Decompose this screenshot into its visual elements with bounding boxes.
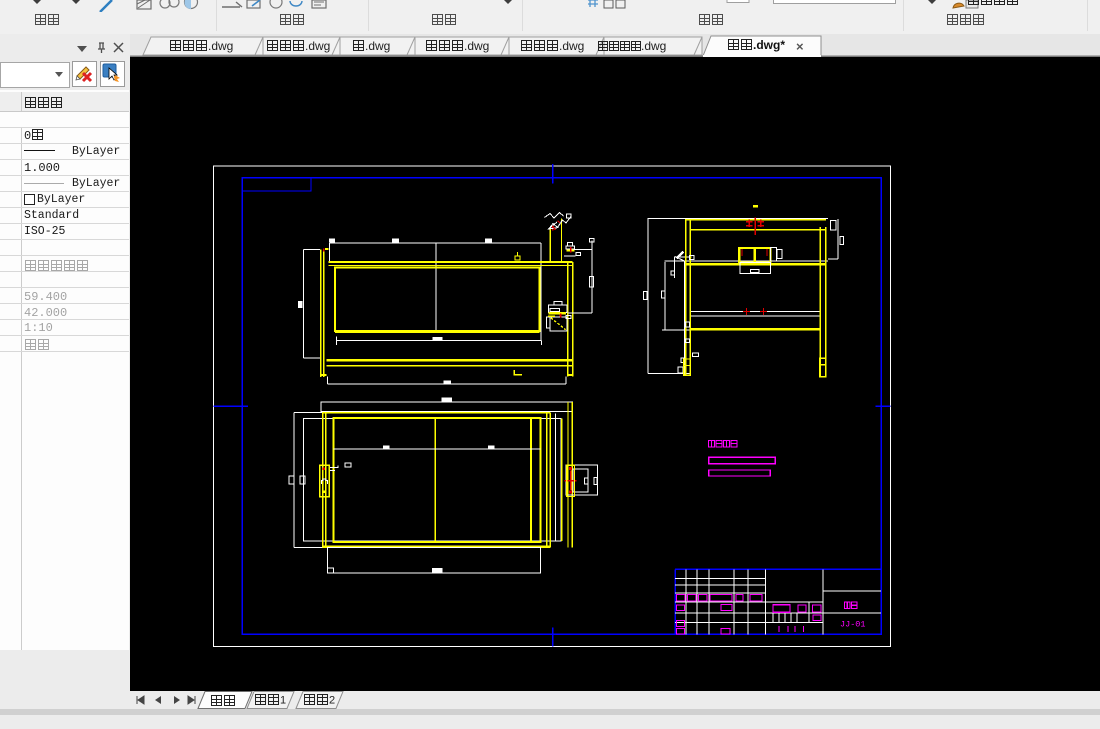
svg-text:JJ-01: JJ-01 — [840, 620, 866, 630]
